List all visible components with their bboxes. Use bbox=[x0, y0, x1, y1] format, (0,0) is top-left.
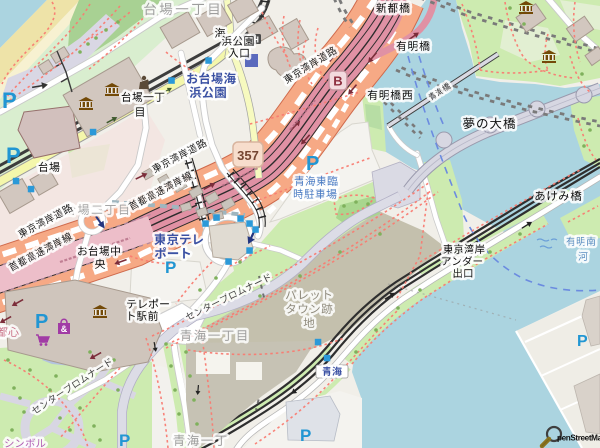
svg-text:&: & bbox=[61, 324, 68, 334]
svg-text:P: P bbox=[306, 153, 319, 175]
svg-text:B: B bbox=[333, 74, 342, 89]
svg-text:357: 357 bbox=[237, 148, 259, 163]
svg-text:P: P bbox=[577, 333, 588, 350]
svg-text:P: P bbox=[300, 426, 311, 445]
svg-text:P: P bbox=[165, 258, 176, 277]
svg-text:P: P bbox=[119, 431, 130, 448]
svg-text:penStreetMap: penStreetMap bbox=[557, 434, 600, 443]
svg-text:P: P bbox=[6, 143, 21, 168]
svg-text:P: P bbox=[2, 88, 17, 113]
svg-text:P: P bbox=[35, 311, 48, 333]
